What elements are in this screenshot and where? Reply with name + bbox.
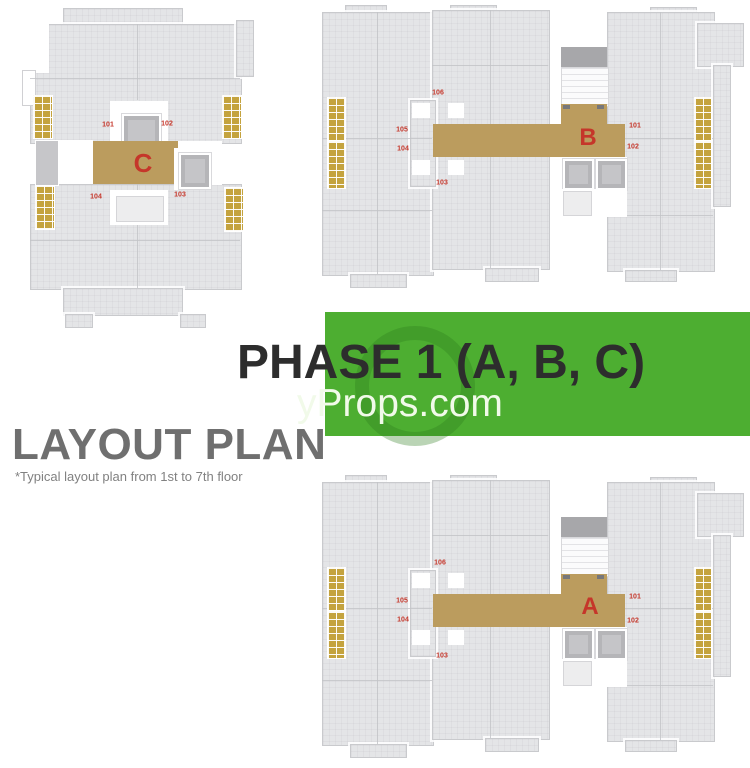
wall-line: [432, 65, 548, 66]
floor-block: [625, 270, 677, 282]
watermark-text: yProps.com: [297, 384, 503, 423]
wall-line: [377, 12, 378, 274]
plan-cutout: [448, 103, 464, 118]
unit-label-104: 104: [397, 617, 409, 624]
balcony-grid: [327, 141, 346, 189]
lift-box: [563, 159, 594, 190]
wall-line: [30, 78, 240, 79]
unit-label-101: 101: [629, 123, 641, 130]
unit-label-103: 103: [436, 180, 448, 187]
balcony-grid: [694, 141, 712, 189]
floor-block: [180, 314, 206, 328]
balcony-grid: [327, 97, 346, 141]
lift-car-icon: [569, 165, 588, 184]
door-mark: [597, 105, 604, 109]
plan-cutout: [412, 160, 430, 175]
page-title: LAYOUT PLAN: [12, 423, 326, 467]
floor-block: [697, 493, 744, 537]
door-mark: [597, 575, 604, 579]
floor-block: [485, 268, 539, 282]
floor-block: [350, 274, 407, 288]
unit-label-103: 103: [174, 192, 186, 199]
balcony-grid: [694, 97, 712, 141]
page-subtitle: *Typical layout plan from 1st to 7th flo…: [15, 470, 243, 484]
door-mark: [563, 105, 570, 109]
unit-label-104: 104: [397, 146, 409, 153]
floor-block: [697, 23, 744, 67]
balcony-grid: [694, 611, 712, 659]
lift-box: [563, 629, 594, 660]
floor-block: [485, 738, 539, 752]
unit-label-101: 101: [629, 594, 641, 601]
wall-line: [322, 680, 432, 681]
duct-box: [563, 661, 592, 686]
balcony-grid: [694, 567, 712, 611]
floor-block: [236, 20, 254, 77]
unit-label-103: 103: [436, 653, 448, 660]
wall-line: [137, 24, 138, 100]
plan-cutout: [448, 160, 464, 175]
plan-letter-b: B: [579, 126, 596, 150]
unit-label-102: 102: [627, 144, 639, 151]
unit-label-105: 105: [396, 598, 408, 605]
stair-landing: [561, 517, 607, 537]
service-block: [35, 140, 59, 186]
floor-block: [713, 535, 731, 677]
wall-line: [660, 482, 661, 740]
floor-block: [350, 744, 407, 758]
wall-line: [432, 535, 548, 536]
duct-box: [563, 191, 592, 216]
floor-block: [713, 65, 731, 207]
lift-car-icon: [569, 635, 588, 654]
unit-label-106: 106: [432, 90, 444, 97]
phase-title: PHASE 1 (A, B, C): [237, 339, 645, 387]
unit-label-105: 105: [396, 127, 408, 134]
plan-cutout: [448, 630, 464, 645]
plan-cutout: [29, 23, 49, 73]
lift-car-icon: [602, 635, 621, 654]
wall-line: [30, 240, 240, 241]
plan-cutout: [412, 103, 430, 118]
balcony-grid: [327, 611, 346, 659]
staircase: [561, 537, 609, 577]
plan-letter-c: C: [134, 150, 153, 176]
floor-plan-a: A 106 105 104 103 101 102: [320, 475, 750, 767]
plan-cutout: [412, 630, 430, 645]
balcony-grid: [35, 185, 55, 230]
unit-label-102: 102: [627, 618, 639, 625]
balcony-grid: [224, 187, 244, 232]
balcony-grid: [327, 567, 346, 611]
lobby-cutout: [57, 140, 93, 184]
lift-car-icon: [602, 165, 621, 184]
floor-block: [63, 288, 183, 316]
lift-box: [596, 159, 627, 190]
staircase: [561, 67, 609, 107]
balcony-grid: [33, 95, 53, 139]
layout-plan-page: C 101 102 104 103: [0, 0, 750, 768]
stair-icon: [185, 159, 205, 183]
floor-block: [625, 740, 677, 752]
plan-cutout: [412, 573, 430, 588]
floor-plan-b: B 106 105 104 103 101 102: [320, 5, 750, 297]
unit-label-106: 106: [434, 560, 446, 567]
stair-landing: [561, 47, 607, 67]
plan-cutout: [448, 573, 464, 588]
duct-box: [116, 196, 164, 222]
floor-plan-c: C 101 102 104 103: [8, 8, 253, 330]
floor-block: [65, 314, 93, 328]
unit-label-101: 101: [102, 122, 114, 129]
wall-line: [377, 482, 378, 744]
balcony-grid: [222, 95, 242, 139]
stair-box: [179, 153, 211, 189]
unit-label-104: 104: [90, 194, 102, 201]
plan-letter-a: A: [581, 595, 598, 619]
lift-box: [596, 629, 627, 660]
wall-line: [322, 210, 432, 211]
wall-line: [660, 12, 661, 270]
door-mark: [563, 575, 570, 579]
unit-label-102: 102: [161, 121, 173, 128]
